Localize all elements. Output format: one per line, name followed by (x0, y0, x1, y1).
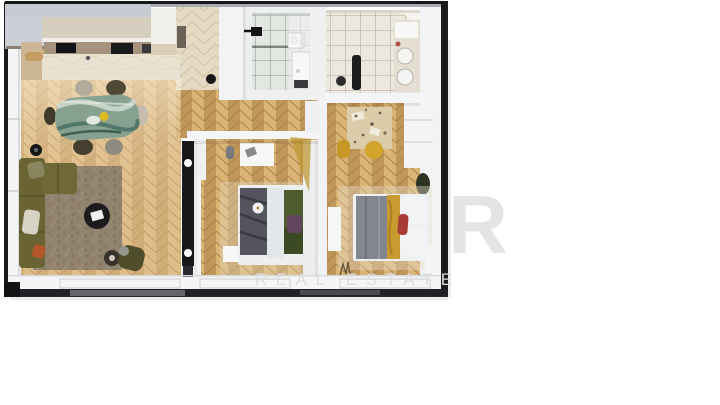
svg-text:R: R (448, 178, 508, 271)
svg-text:REAL ESTATE: REAL ESTATE (255, 270, 461, 289)
